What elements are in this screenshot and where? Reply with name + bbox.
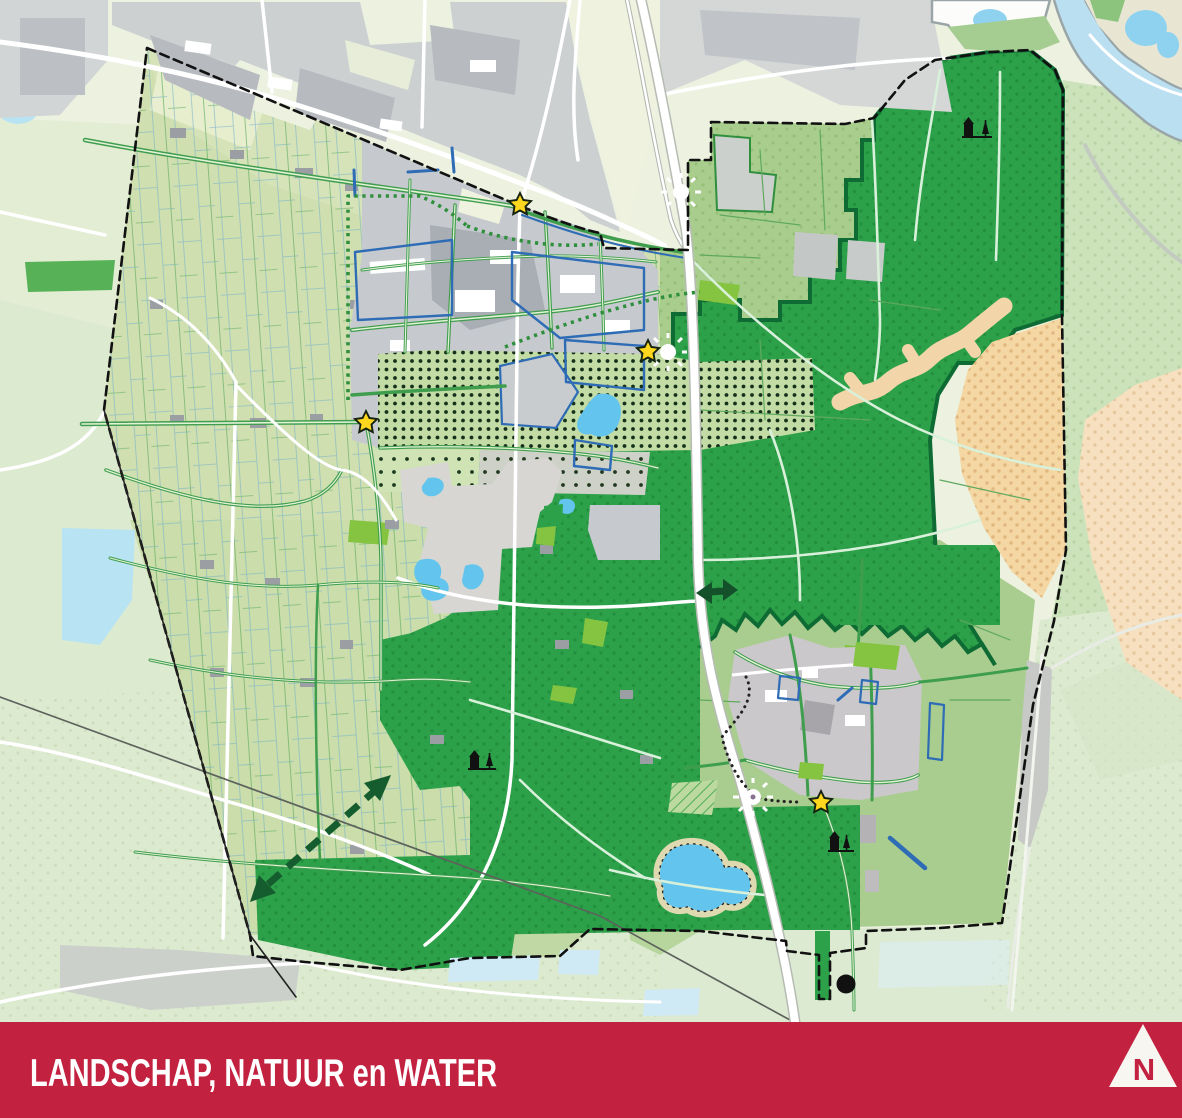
svg-text:N: N [1133, 1052, 1155, 1087]
svg-text:LANDSCHAP, NATUUR en WATER: LANDSCHAP, NATUUR en WATER [30, 1052, 497, 1095]
